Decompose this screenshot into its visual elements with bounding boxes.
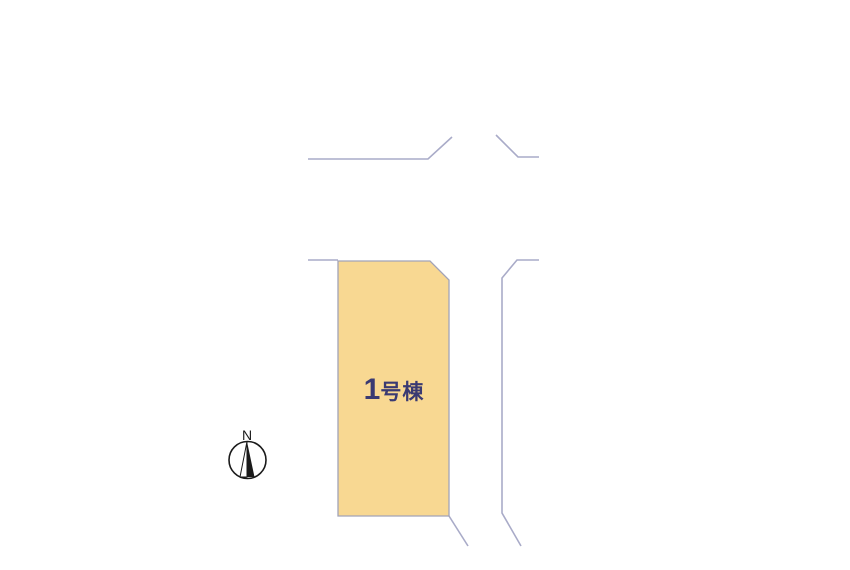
compass-needle-icon — [247, 442, 255, 478]
lot-1-label-suffix: 号棟 — [380, 380, 424, 404]
road-edge-top-left — [308, 137, 452, 159]
compass-needle-outline — [240, 442, 247, 478]
road-edge-right — [502, 260, 539, 546]
compass-north-label: N — [242, 427, 252, 443]
compass: N — [229, 427, 266, 479]
site-plan-svg: 1号棟 N — [0, 0, 850, 570]
site-plan-canvas: 1号棟 N — [0, 0, 850, 570]
road-edge-bottom-left — [449, 516, 468, 546]
lot-1-label-number: 1 — [364, 373, 381, 406]
road-edge-top-right — [496, 135, 539, 157]
